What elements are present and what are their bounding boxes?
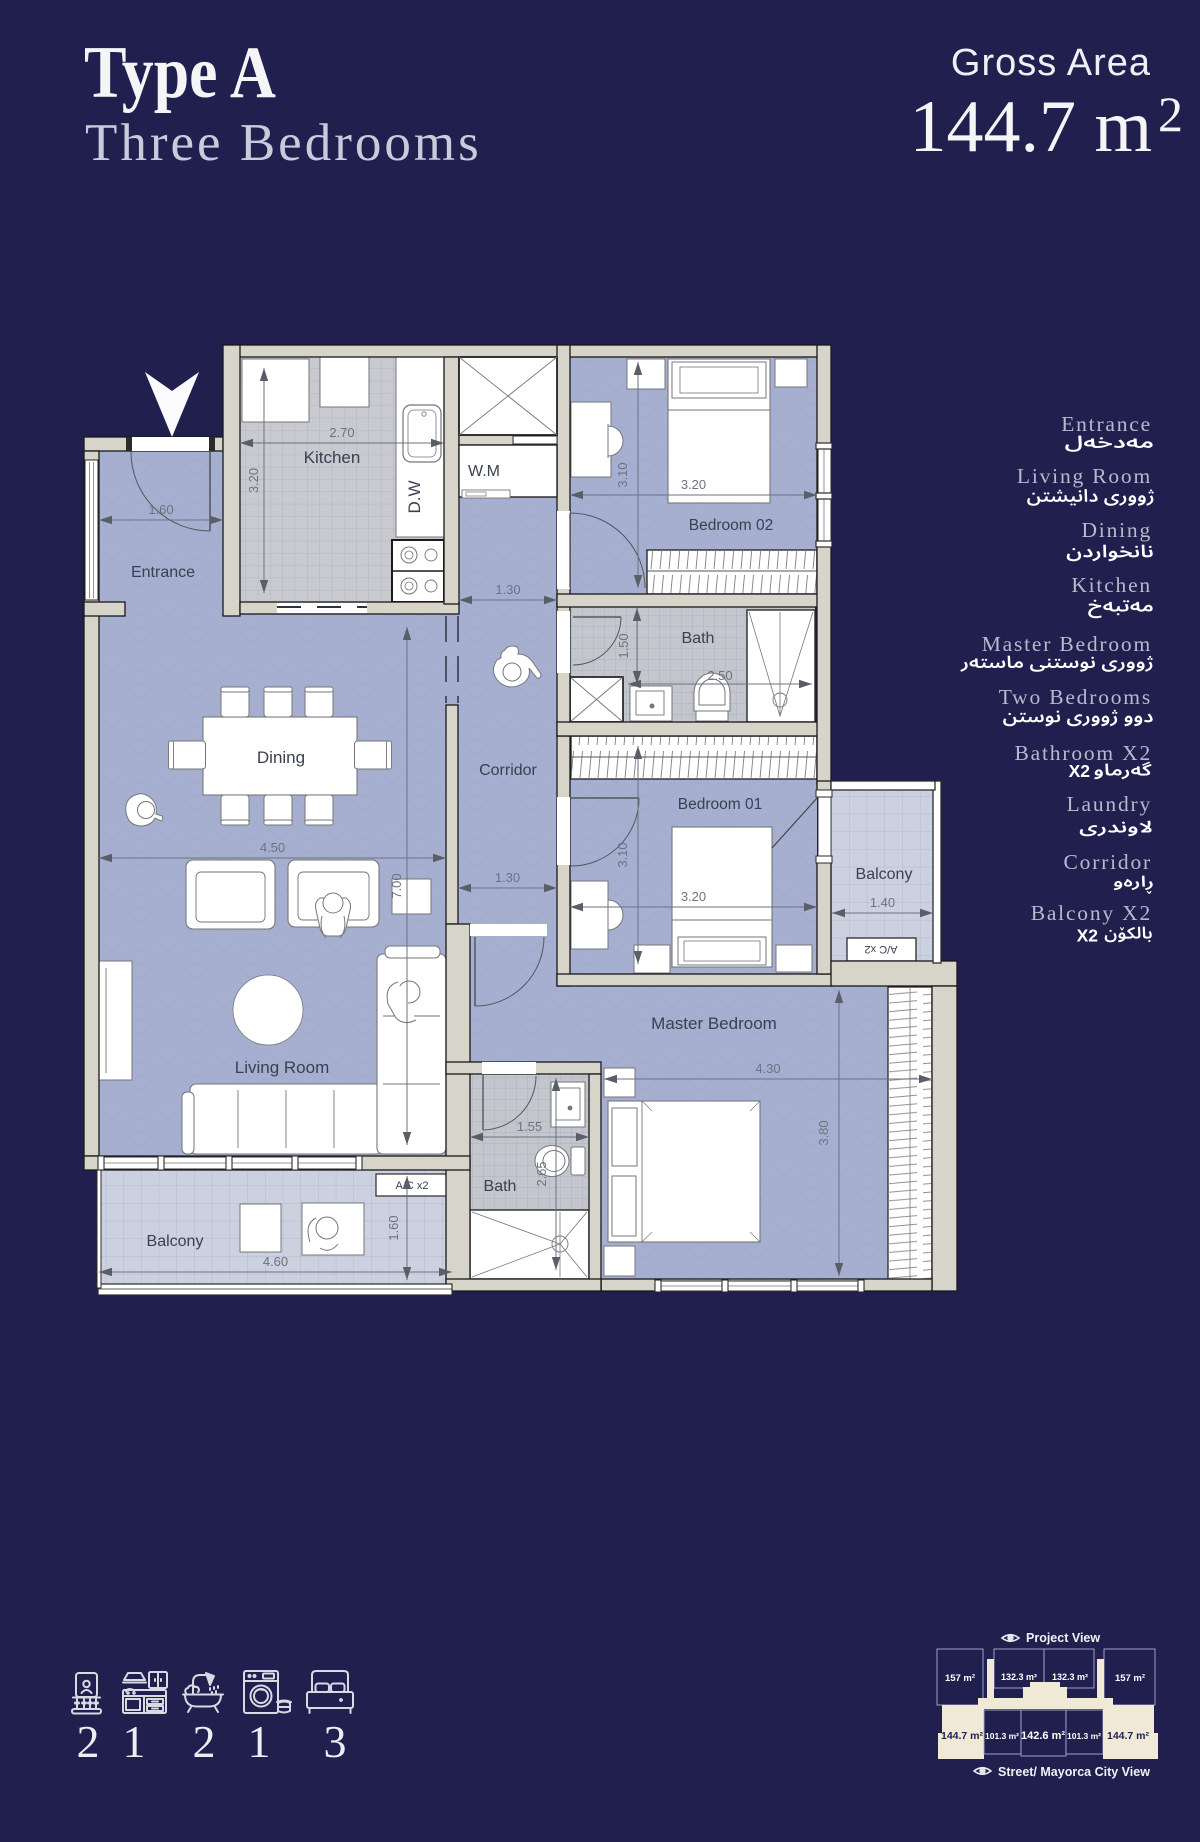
svg-text:Living Room: Living Room xyxy=(1017,464,1152,488)
svg-text:4.30: 4.30 xyxy=(755,1061,780,1076)
svg-text:3.10: 3.10 xyxy=(615,462,630,487)
svg-text:Balcony: Balcony xyxy=(147,1233,204,1250)
svg-text:132.3 m²: 132.3 m² xyxy=(1052,1672,1088,1682)
svg-text:Entrance: Entrance xyxy=(1061,412,1152,436)
svg-text:Project View: Project View xyxy=(1026,1631,1100,1645)
svg-text:101.3 m²: 101.3 m² xyxy=(1067,1731,1101,1741)
svg-text:Dining: Dining xyxy=(1081,518,1152,542)
svg-text:3.20: 3.20 xyxy=(246,468,261,493)
svg-text:D.W: D.W xyxy=(405,480,424,513)
svg-text:3.20: 3.20 xyxy=(681,889,706,904)
svg-text:1.30: 1.30 xyxy=(495,582,520,597)
svg-text:Bedroom 02: Bedroom 02 xyxy=(689,517,773,534)
svg-text:1.55: 1.55 xyxy=(517,1119,542,1134)
svg-text:Bath: Bath xyxy=(484,1178,517,1195)
svg-text:Balcony X2: Balcony X2 xyxy=(1031,901,1152,925)
svg-text:Entrance: Entrance xyxy=(131,564,195,581)
svg-text:1.30: 1.30 xyxy=(495,870,520,885)
svg-text:Three Bedrooms: Three Bedrooms xyxy=(85,114,482,172)
svg-text:Living Room: Living Room xyxy=(235,1058,330,1077)
svg-text:144.7 m²: 144.7 m² xyxy=(1107,1730,1150,1742)
svg-text:Kitchen: Kitchen xyxy=(1071,573,1152,597)
svg-text:1.60: 1.60 xyxy=(148,502,173,517)
svg-text:Type A: Type A xyxy=(84,32,276,114)
svg-text:2: 2 xyxy=(193,1716,216,1767)
svg-text:Master Bedroom: Master Bedroom xyxy=(651,1014,777,1033)
svg-text:1: 1 xyxy=(123,1716,146,1767)
svg-text:2.50: 2.50 xyxy=(707,668,732,683)
svg-text:1.40: 1.40 xyxy=(870,895,895,910)
svg-text:Two Bedrooms: Two Bedrooms xyxy=(999,685,1152,709)
svg-text:132.3 m²: 132.3 m² xyxy=(1001,1672,1037,1682)
svg-text:7.00: 7.00 xyxy=(389,873,404,898)
svg-text:1.60: 1.60 xyxy=(386,1215,401,1240)
svg-text:Master Bedroom: Master Bedroom xyxy=(982,632,1152,656)
svg-text:Corridor: Corridor xyxy=(1064,850,1152,874)
svg-text:2.70: 2.70 xyxy=(329,425,354,440)
svg-text:A/C x2: A/C x2 xyxy=(864,943,897,955)
svg-text:3.20: 3.20 xyxy=(681,477,706,492)
svg-text:Balcony: Balcony xyxy=(856,866,913,883)
svg-text:Dining: Dining xyxy=(257,748,305,767)
svg-text:144.7 m²: 144.7 m² xyxy=(941,1730,984,1742)
svg-text:101.3 m²: 101.3 m² xyxy=(985,1731,1019,1741)
svg-text:Laundry: Laundry xyxy=(1067,792,1152,816)
svg-text:2: 2 xyxy=(1158,86,1183,142)
svg-text:144.7 m: 144.7 m xyxy=(909,86,1152,168)
svg-text:W.M: W.M xyxy=(468,463,500,480)
svg-text:142.6 m²: 142.6 m² xyxy=(1021,1730,1065,1742)
svg-text:3: 3 xyxy=(324,1716,347,1767)
svg-text:3.80: 3.80 xyxy=(816,1120,831,1145)
svg-text:Corridor: Corridor xyxy=(479,762,537,779)
svg-text:3.10: 3.10 xyxy=(615,842,630,867)
svg-text:4.60: 4.60 xyxy=(263,1254,288,1269)
svg-text:X2: X2 xyxy=(1077,926,1099,946)
svg-text:A/C x2: A/C x2 xyxy=(395,1180,428,1192)
svg-text:Bath: Bath xyxy=(682,630,715,647)
svg-text:1.50: 1.50 xyxy=(616,633,631,658)
svg-text:157 m²: 157 m² xyxy=(945,1673,975,1684)
svg-text:X2: X2 xyxy=(1069,761,1091,781)
svg-text:Bedroom 01: Bedroom 01 xyxy=(678,796,762,813)
svg-text:157 m²: 157 m² xyxy=(1115,1673,1145,1684)
svg-text:Gross Area: Gross Area xyxy=(951,42,1151,84)
svg-text:Street/ Mayorca City View: Street/ Mayorca City View xyxy=(998,1765,1150,1779)
svg-text:2: 2 xyxy=(77,1716,100,1767)
svg-text:Kitchen: Kitchen xyxy=(304,448,361,467)
svg-text:4.50: 4.50 xyxy=(260,840,285,855)
svg-text:2.65: 2.65 xyxy=(534,1161,549,1186)
svg-text:1: 1 xyxy=(248,1716,271,1767)
